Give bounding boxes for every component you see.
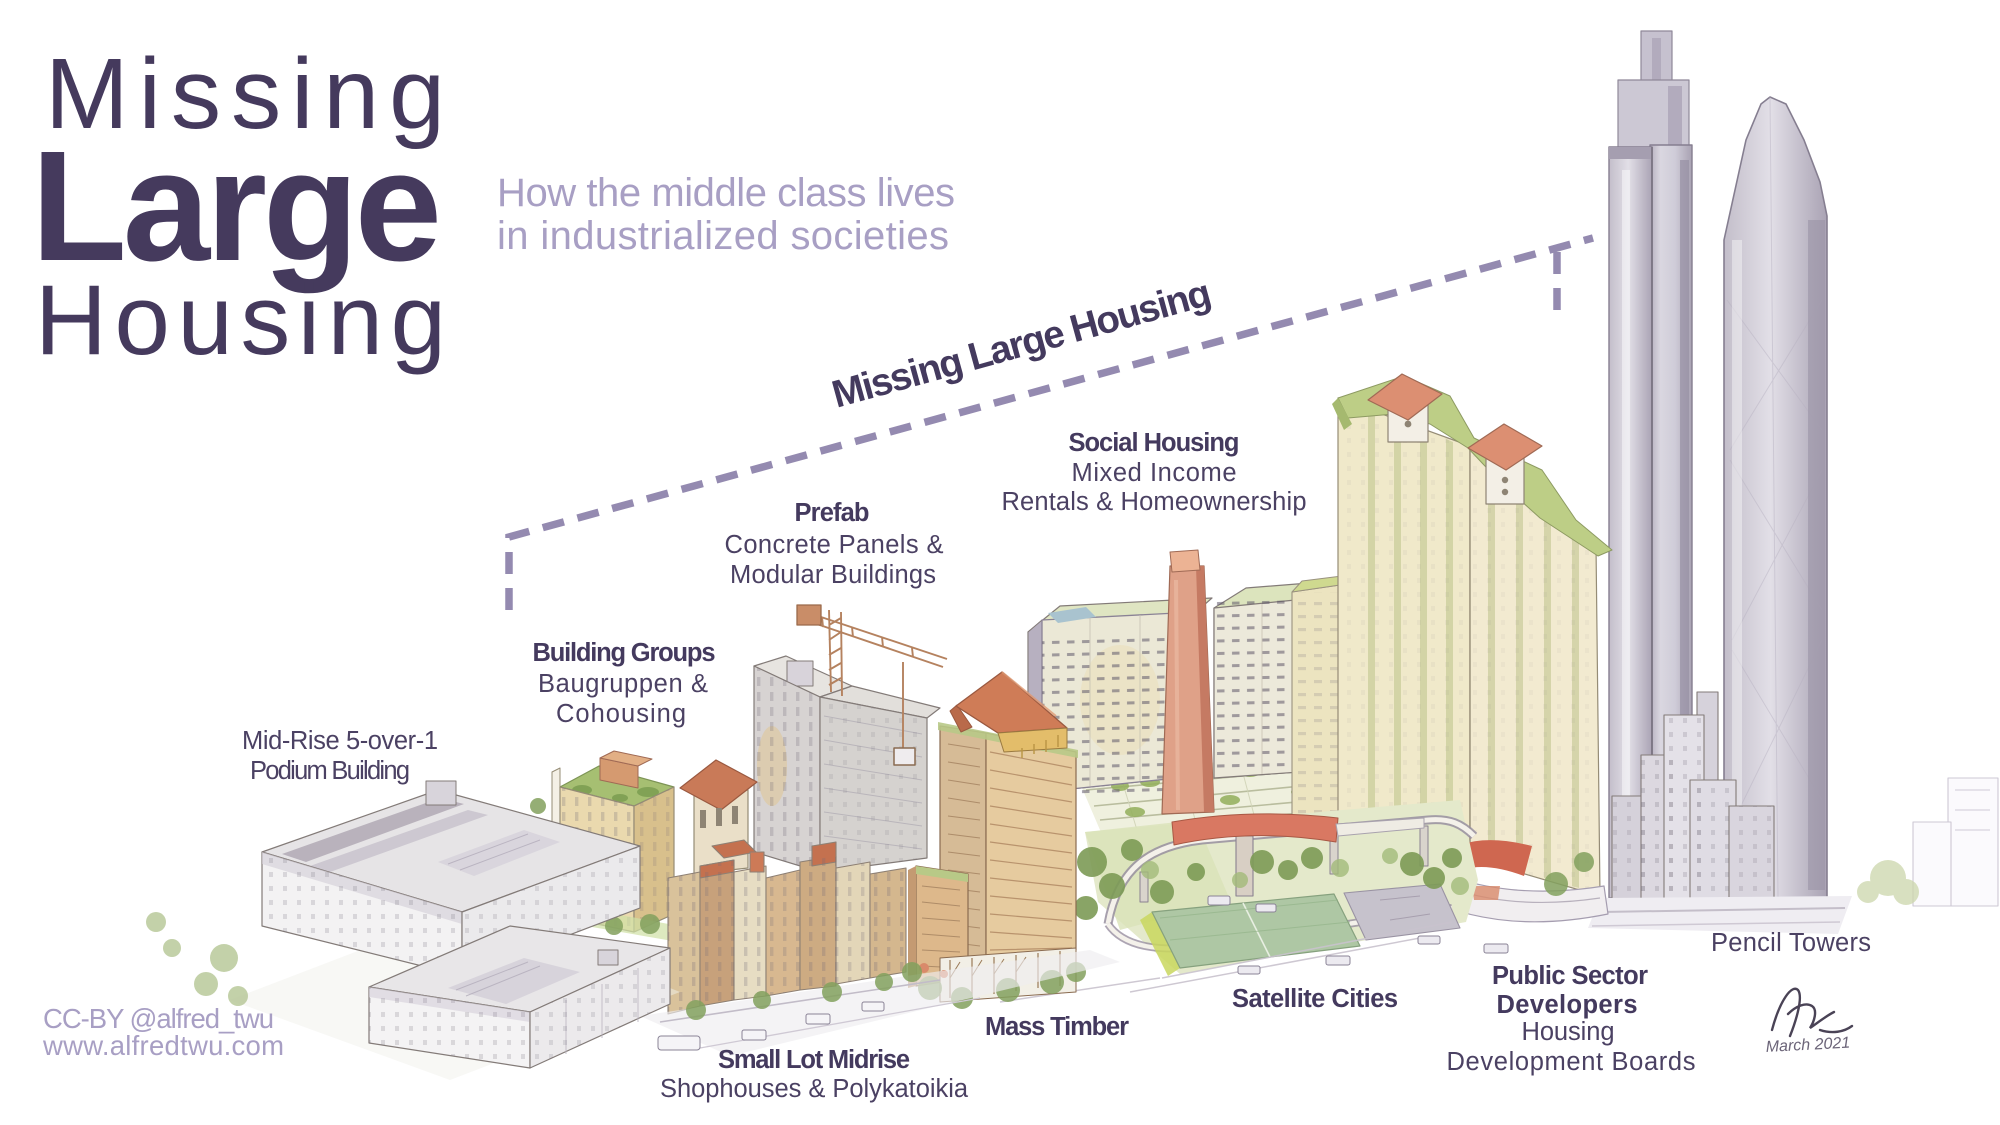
svg-text:in industrialized societies: in industrialized societies (497, 214, 949, 258)
svg-text:Cohousing: Cohousing (556, 700, 686, 728)
svg-text:Development Boards: Development Boards (1447, 1048, 1696, 1076)
svg-text:Housing: Housing (1522, 1018, 1615, 1046)
svg-text:Rentals & Homeownership: Rentals & Homeownership (1002, 488, 1307, 516)
svg-text:Building Groups: Building Groups (533, 639, 716, 667)
svg-text:Concrete Panels &: Concrete Panels & (725, 531, 944, 559)
svg-text:Prefab: Prefab (795, 499, 870, 527)
svg-text:Pencil Towers: Pencil Towers (1711, 929, 1871, 957)
svg-text:Mixed Income: Mixed Income (1072, 459, 1237, 487)
svg-text:How the middle class lives: How the middle class lives (497, 171, 955, 215)
svg-text:Social Housing: Social Housing (1069, 429, 1240, 457)
svg-text:Baugruppen &: Baugruppen & (538, 670, 708, 698)
svg-text:Satellite Cities: Satellite Cities (1232, 985, 1398, 1013)
svg-text:Mid-Rise 5-over-1: Mid-Rise 5-over-1 (242, 727, 438, 755)
svg-text:Public Sector: Public Sector (1492, 962, 1648, 990)
svg-text:Podium Building: Podium Building (250, 757, 410, 785)
svg-text:Mass Timber: Mass Timber (985, 1013, 1129, 1041)
svg-text:Shophouses & Polykatoikia: Shophouses & Polykatoikia (660, 1075, 969, 1103)
svg-text:Small Lot Midrise: Small Lot Midrise (718, 1046, 910, 1074)
svg-text:Developers: Developers (1497, 991, 1638, 1019)
svg-text:www.alfredtwu.com: www.alfredtwu.com (42, 1030, 284, 1061)
svg-text:Modular Buildings: Modular Buildings (730, 561, 936, 589)
